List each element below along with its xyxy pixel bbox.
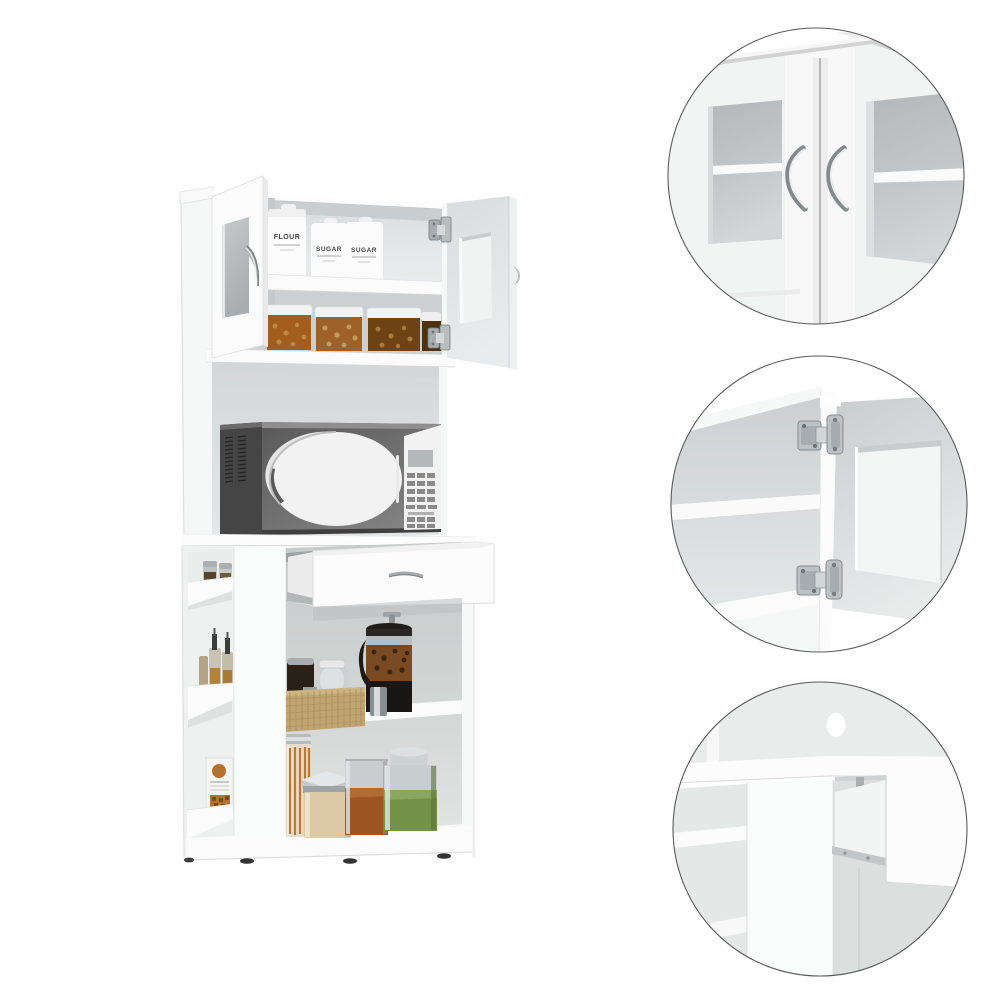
svg-text:FLOUR: FLOUR: [274, 234, 301, 241]
svg-text:SUGAR: SUGAR: [316, 246, 342, 253]
svg-text:SUGAR: SUGAR: [351, 247, 377, 254]
